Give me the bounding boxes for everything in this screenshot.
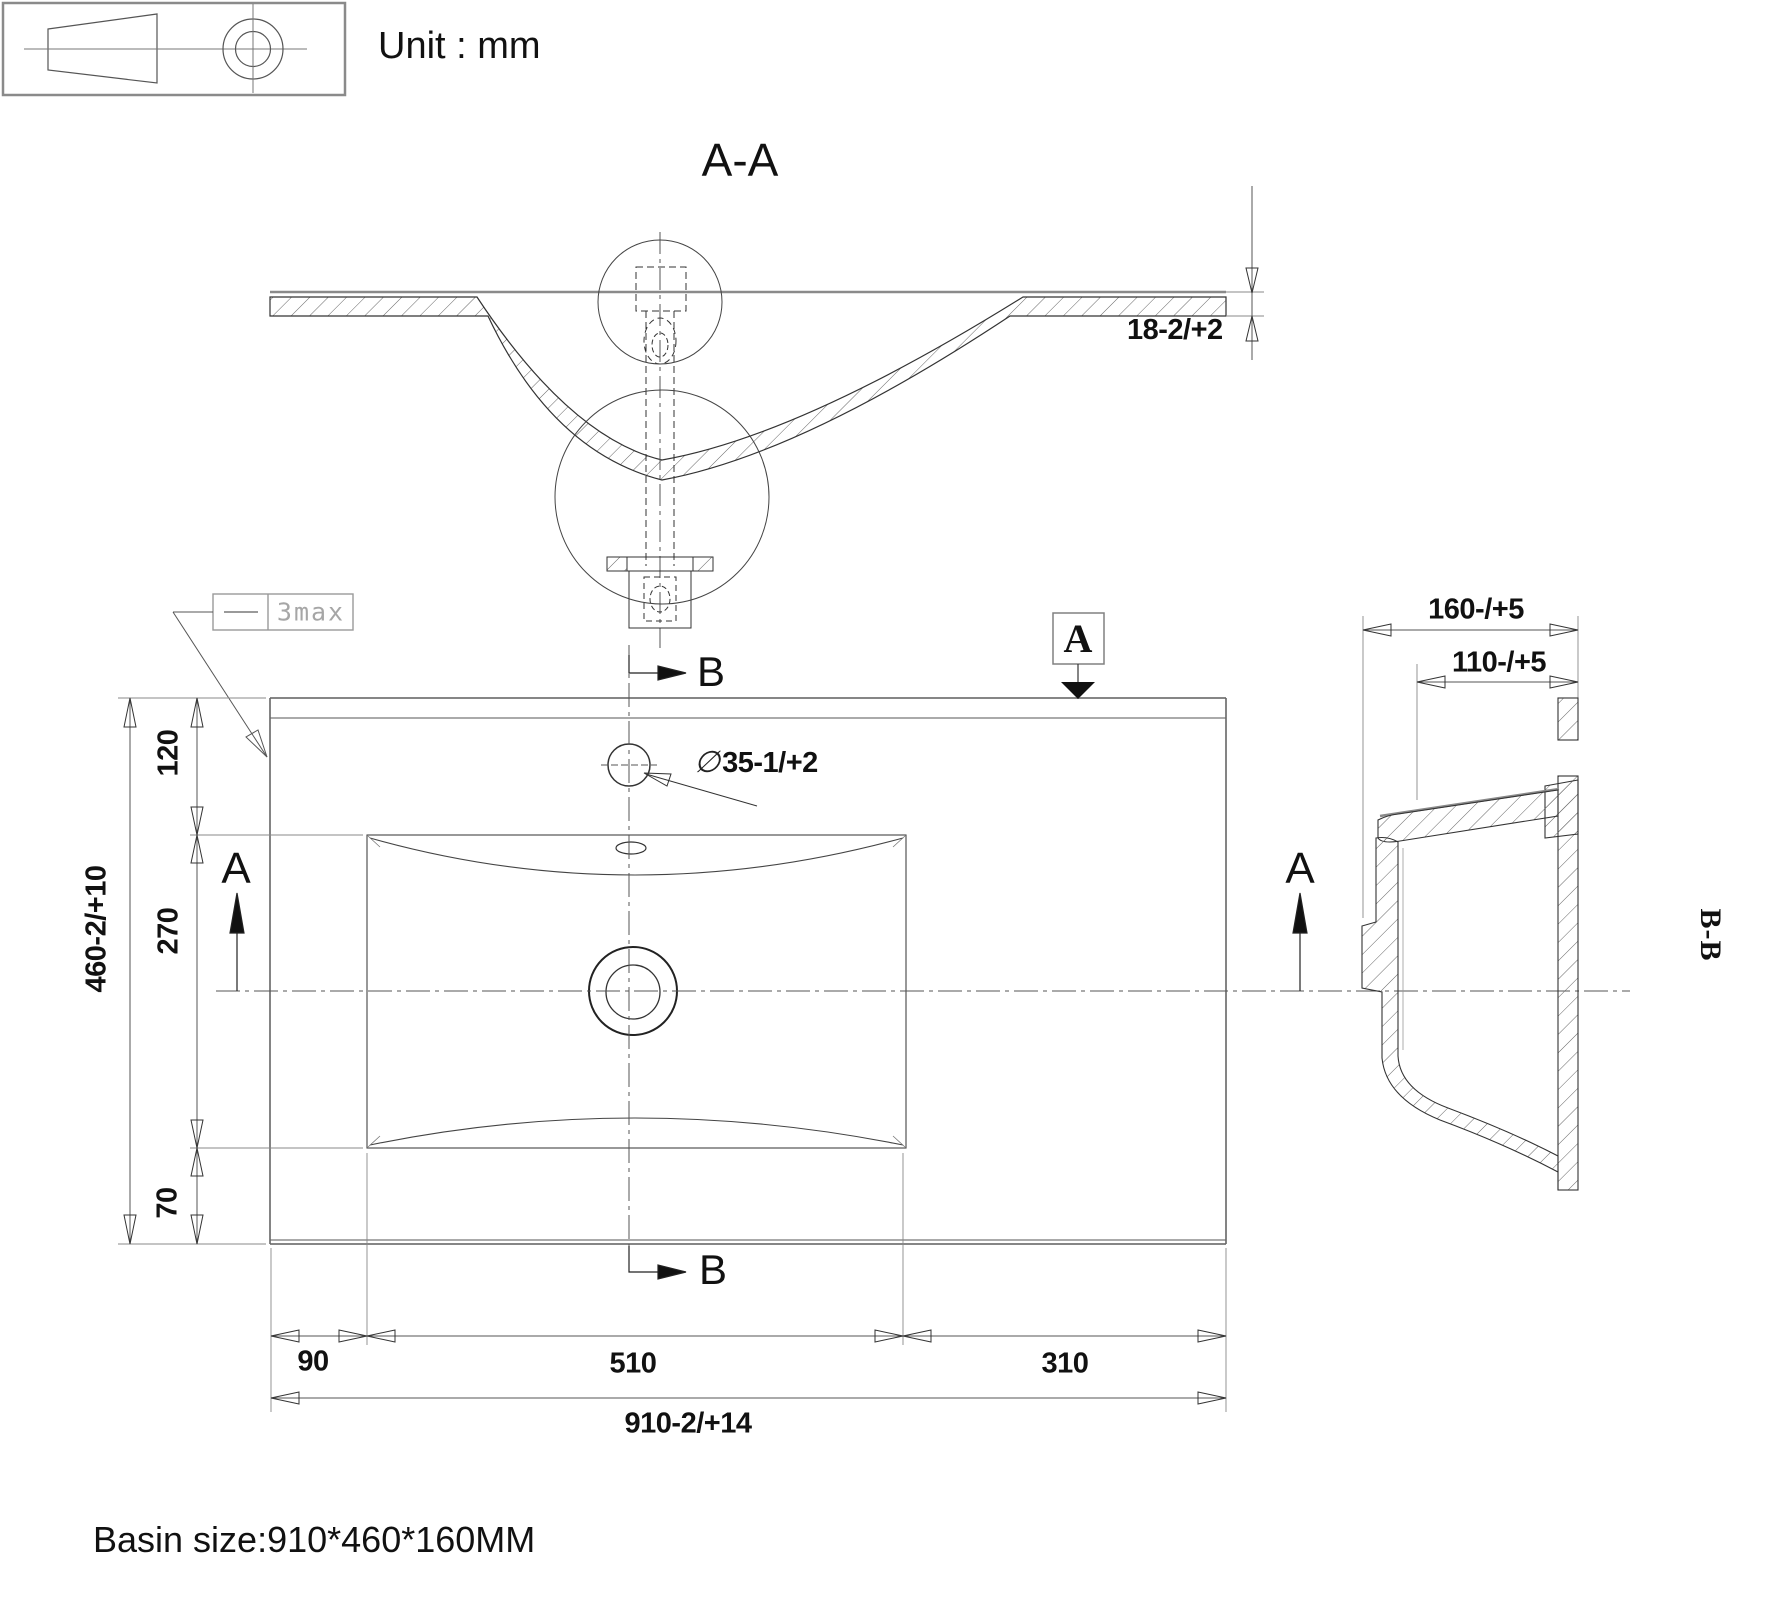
dim-height-overall: 460-2/+10: [83, 866, 112, 993]
dim-width-bowl: 510: [610, 1350, 657, 1379]
drain-inner: [606, 965, 660, 1019]
dim-width-right: 310: [1042, 1350, 1089, 1379]
dim-height-bowl: 270: [155, 908, 184, 955]
drawing-linework: [0, 0, 1767, 1598]
diameter-symbol-icon: ∅: [694, 746, 720, 779]
basin-size-note: Basin size:910*460*160MM: [93, 1522, 535, 1558]
overflow-slot: [616, 842, 646, 854]
section-a-marker-right: A: [1285, 847, 1314, 891]
dim-width-overall: 910-2/+14: [625, 1410, 752, 1439]
section-bb-title: B-B: [1695, 908, 1725, 961]
dim-faucet-hole: ∅35-1/+2: [694, 748, 818, 778]
dims-left-lines: [118, 698, 363, 1244]
dim-depth-overall: 160-/+5: [1428, 596, 1524, 625]
dim-faucet-hole-value: 35-1/+2: [722, 747, 818, 779]
section-a-box-letter: A: [1064, 619, 1093, 659]
section-b-marker-top: B: [697, 651, 725, 693]
dim-height-bottom: 70: [154, 1187, 183, 1218]
section-bb-drawing: [1362, 616, 1578, 1190]
cutting-line-b-arrows: [629, 655, 686, 1279]
drain-assembly-hidden-lines: [607, 232, 713, 648]
section-a-marker-left: A: [221, 847, 250, 891]
dim-deck-thickness: 18-2/+2: [1127, 316, 1223, 345]
flatness-tolerance-value: 3max: [277, 600, 345, 625]
dim-deck-thickness-lines: [1226, 186, 1264, 360]
unit-label: Unit : mm: [378, 27, 541, 65]
projection-symbol-icon: [3, 3, 345, 95]
dim-height-top: 120: [155, 730, 184, 777]
section-aa-title: A-A: [702, 137, 779, 183]
section-b-marker-bottom: B: [699, 1249, 727, 1291]
dim-depth-inner: 110-/+5: [1452, 649, 1546, 678]
dim-width-left: 90: [297, 1348, 328, 1377]
cutting-line-a-arrows: [230, 893, 1307, 991]
engineering-drawing: Unit : mm A-A 18-2/+2 3max B B A A A ∅35…: [0, 0, 1767, 1598]
section-aa-drawing: [270, 186, 1264, 648]
